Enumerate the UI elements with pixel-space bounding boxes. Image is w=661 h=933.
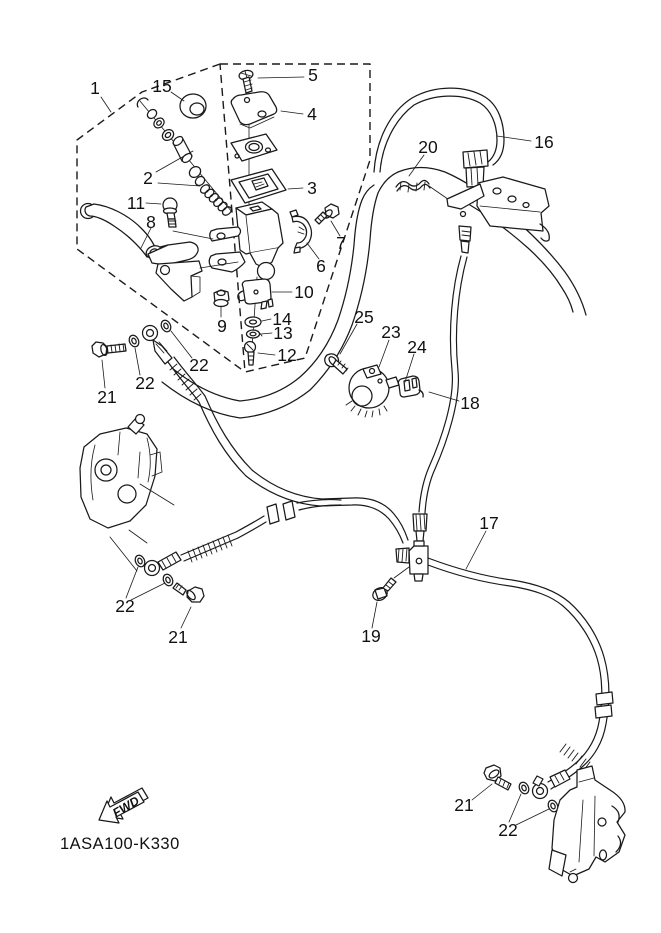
reservoir-cap-4 [231, 92, 276, 128]
bolt-7 [315, 204, 339, 224]
callout-9-11: 9 [217, 316, 227, 336]
callout-20-22: 20 [418, 137, 438, 157]
clamp-arm-lower [209, 252, 245, 272]
callout-2-4: 2 [143, 168, 153, 188]
parts-diagram-page: FWD 1ASA100-K330 11554231187610914131222… [0, 0, 661, 933]
banjo-bolt-21 [173, 583, 204, 602]
callout-3-5: 3 [307, 178, 317, 198]
washer-22 [517, 781, 530, 796]
callout-21-17: 21 [97, 387, 116, 407]
callout-22-27: 22 [115, 596, 134, 616]
callout-10-10: 10 [294, 282, 314, 302]
brake-switch-23 [346, 365, 399, 417]
exploded-parts-diagram: FWD 1ASA100-K330 11554231187610914131222… [0, 0, 661, 933]
caliper-front-left [80, 415, 174, 572]
flange-nut-9 [214, 290, 229, 307]
junction-block [396, 541, 428, 581]
fwd-arrow: FWD [99, 788, 148, 823]
banjo-bolt-21 [484, 765, 511, 790]
callout-8-7: 8 [146, 212, 156, 232]
diaphragm-3 [231, 169, 286, 203]
lock-washer-13 [247, 330, 263, 338]
boot-15 [180, 94, 206, 118]
washer-14 [245, 317, 261, 327]
callout-16-21: 16 [534, 132, 553, 152]
brake-cable-18 [413, 256, 467, 541]
callout-24-20: 24 [407, 337, 427, 357]
callout-17-24: 17 [479, 513, 498, 533]
master-cylinder-body [209, 202, 283, 280]
callout-6-9: 6 [316, 256, 326, 276]
drawing-code: 1ASA100-K330 [60, 835, 180, 853]
washer-22 [161, 573, 174, 588]
screw-5 [238, 69, 254, 93]
caliper-hose-left [133, 500, 341, 602]
bolt-19 [371, 567, 409, 603]
washer-22 [127, 334, 140, 349]
callout-22-16: 22 [135, 373, 154, 393]
callout-11-6: 11 [127, 193, 145, 213]
callout-4-3: 4 [307, 104, 317, 124]
callout-23-19: 23 [381, 322, 400, 342]
callout-22-29: 22 [498, 820, 517, 840]
pivot-bolt-11 [163, 198, 213, 239]
callout-19-25: 19 [361, 626, 380, 646]
cable-clip-20 [396, 180, 455, 204]
diaphragm-plate [231, 134, 277, 161]
callout-1-0: 1 [90, 78, 100, 98]
callout-25-18: 25 [354, 307, 373, 327]
callout-12-14: 12 [277, 345, 296, 365]
lever-perch-bracket [447, 177, 549, 253]
callout-18-23: 18 [460, 393, 479, 413]
callout-21-26: 21 [168, 627, 187, 647]
screw-12 [245, 342, 256, 366]
callout-21-28: 21 [454, 795, 473, 815]
callout-13-13: 13 [273, 323, 292, 343]
callout-5-2: 5 [308, 65, 318, 85]
callout-15-1: 15 [152, 76, 171, 96]
bolt-25 [325, 354, 348, 374]
connector-24 [398, 376, 423, 397]
callout-7-8: 7 [336, 233, 346, 253]
brake-lever-8 [81, 204, 239, 302]
clamp-half-6 [290, 210, 312, 253]
callout-22-15: 22 [189, 355, 208, 375]
banjo-bolt-21 [92, 342, 126, 357]
